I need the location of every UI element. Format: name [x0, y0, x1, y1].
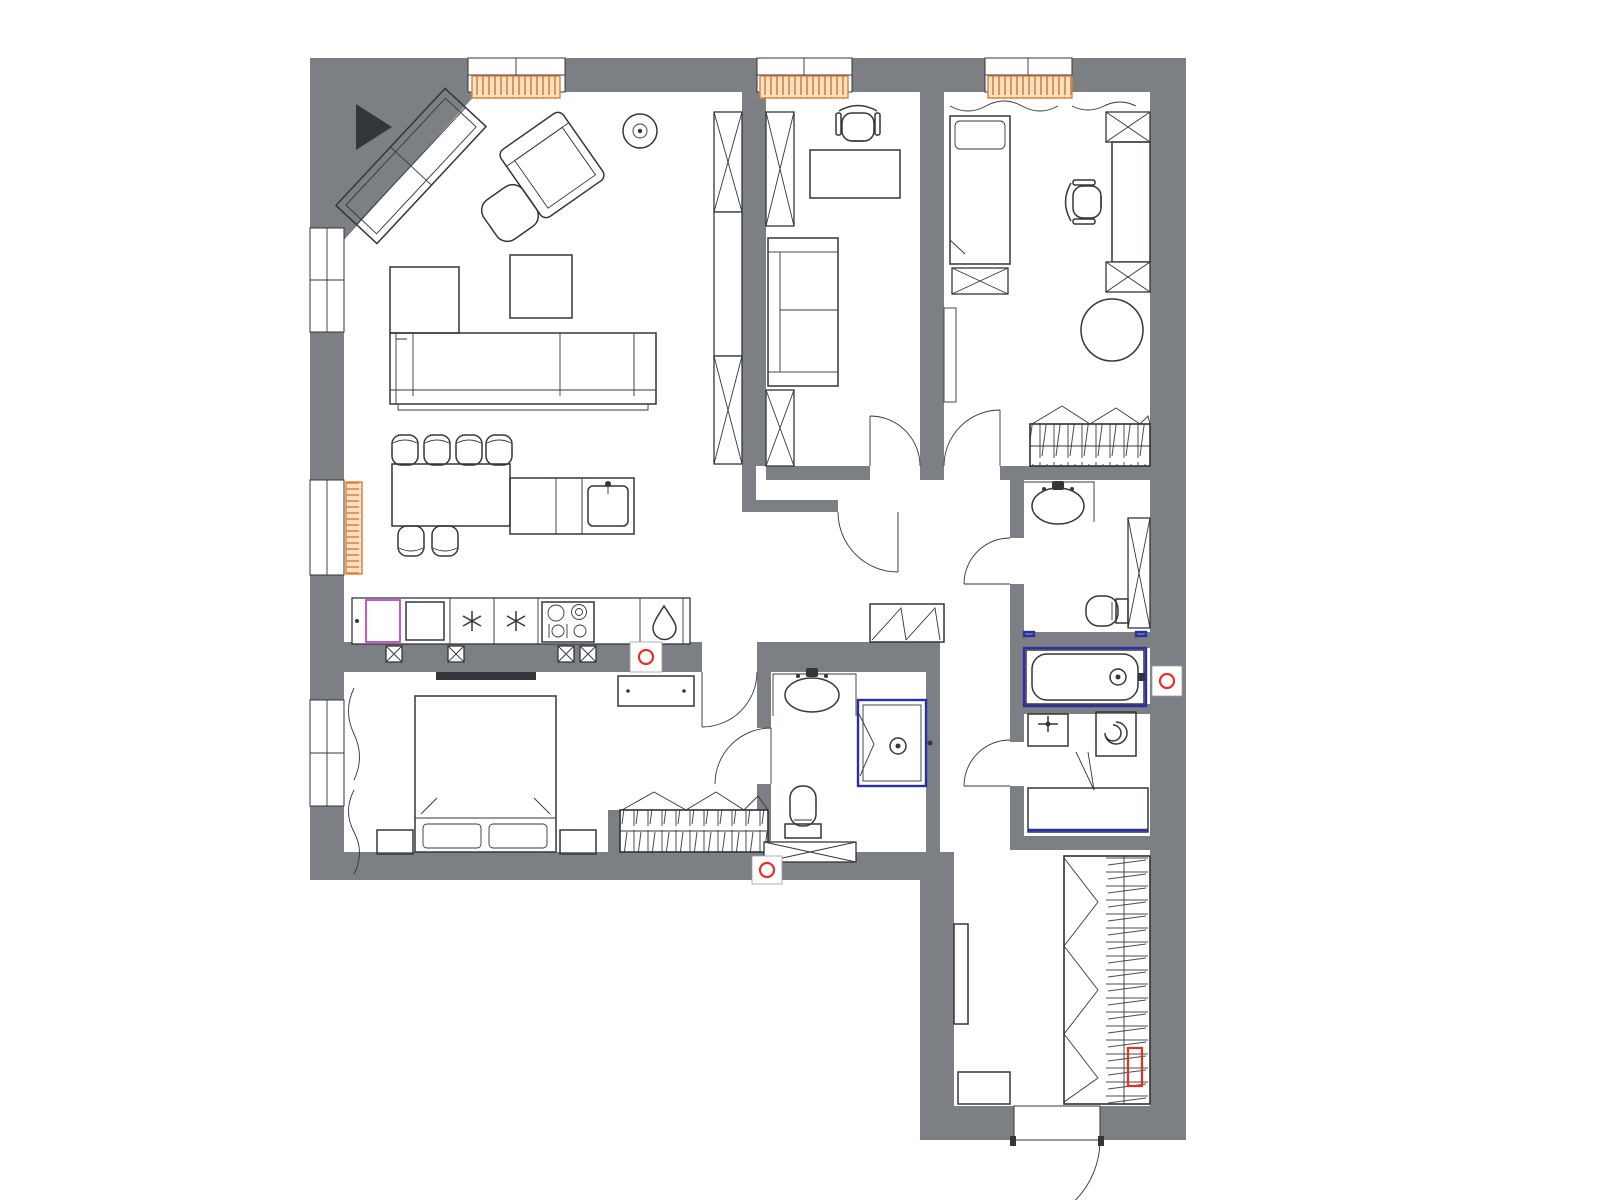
wall-ensuite-left-a — [757, 672, 771, 728]
wall-tv — [436, 672, 536, 680]
ensuite-toilet — [785, 786, 821, 838]
office-desk — [810, 150, 900, 198]
wall-ensuite-right — [926, 672, 940, 852]
window-master-left — [310, 700, 344, 806]
family-toilet — [1086, 596, 1128, 626]
door-office — [870, 416, 920, 466]
office-desk-chair — [836, 106, 880, 142]
radiators — [346, 76, 1072, 574]
drain-mark-kitchen — [630, 642, 662, 672]
bedroom-desk-chair — [1066, 180, 1102, 224]
wall-bath-left-c — [1010, 648, 1024, 708]
drain-mark-ensuite — [752, 856, 782, 884]
double-bed — [415, 696, 556, 852]
armchair — [497, 110, 606, 221]
wall-bottom-entry-left — [920, 1106, 1014, 1140]
family-vanity-washbasin — [1024, 481, 1094, 524]
wall-laundry-corridor — [1010, 836, 1150, 850]
kitchen-counter — [352, 598, 690, 644]
utility-sink — [1028, 714, 1068, 746]
kitchen-island — [510, 478, 634, 534]
curtain — [950, 101, 1136, 111]
radiator-office — [760, 76, 848, 98]
outlet-icon — [386, 646, 402, 662]
outlet-icon — [448, 646, 464, 662]
door-kids-bedroom — [944, 410, 1000, 466]
door-laundry — [964, 740, 1010, 786]
master-open-wardrobe — [608, 792, 768, 852]
room-kids-bedroom — [944, 101, 1150, 466]
ceiling-lamp — [623, 114, 657, 148]
floor-plan-drawing — [0, 0, 1600, 1200]
wall-bath-left-a — [1010, 480, 1024, 538]
wall-hall-pier — [920, 466, 944, 480]
outlet-icon — [558, 646, 574, 662]
bath-blue-walls — [1024, 648, 1146, 706]
corner-sofa — [390, 267, 656, 410]
door-family-bathroom — [964, 538, 1010, 584]
dining-table — [392, 464, 510, 526]
door-kitchen-hall — [838, 512, 898, 572]
bedroom-desk — [1112, 142, 1150, 262]
wall-shelf — [944, 308, 956, 402]
window-living-left-1 — [310, 228, 344, 332]
wall-corridor-left — [920, 880, 954, 1140]
wall-hall-a — [766, 466, 870, 480]
wall-kitchen-stub-h — [742, 500, 838, 512]
bathtub — [1026, 650, 1145, 704]
wall-right — [1150, 92, 1186, 1140]
room-laundry — [1028, 712, 1148, 832]
wall-office-bedroom — [920, 92, 944, 466]
room-entrance-hall — [954, 856, 1150, 1200]
room-office — [766, 106, 900, 467]
coffee-table — [510, 255, 572, 318]
ensuite-vanity-washbasin — [773, 668, 856, 716]
laundry-counter — [1028, 788, 1148, 832]
radiator-kitchen-left — [346, 482, 362, 574]
hall-open-wardrobe — [1064, 856, 1150, 1104]
nightstand-left — [377, 830, 413, 854]
door-ensuite — [715, 728, 771, 784]
window-living-left-2 — [310, 480, 344, 575]
entrance-door — [1010, 1136, 1104, 1200]
pouf — [477, 180, 544, 247]
room-master-bedroom — [349, 672, 769, 874]
nightstand-right — [560, 830, 596, 854]
door-master-bedroom — [702, 672, 757, 727]
folding-door-mark — [1076, 752, 1094, 790]
wall-ensuite-top — [757, 642, 940, 672]
radiator-bedroom — [988, 76, 1072, 98]
floor-plan-page — [0, 0, 1600, 1200]
desk-wardrobe-strip — [1106, 112, 1150, 292]
shoe-cabinet-hall — [870, 604, 944, 642]
dresser — [618, 676, 694, 706]
single-bed — [950, 116, 1010, 264]
bedroom-open-wardrobe — [1030, 406, 1150, 466]
wall-bath-left-e — [1010, 786, 1024, 836]
outlet-icon — [580, 646, 596, 662]
radiator-living — [472, 76, 560, 98]
drain-mark-bath — [1152, 666, 1182, 696]
room-family-bathroom — [1024, 481, 1150, 636]
office-sofa — [768, 238, 838, 386]
shower-cabin — [858, 700, 933, 786]
wall-bath-divider-1 — [1010, 632, 1150, 648]
entrance-door-opening — [1014, 1106, 1100, 1140]
dishwasher — [366, 600, 400, 642]
washing-machine — [1096, 712, 1136, 756]
bed-chest — [952, 268, 1008, 294]
bar-stools — [392, 435, 512, 556]
curtain — [349, 688, 360, 874]
wall-bottom-left — [310, 852, 954, 880]
wardrobe-column-living — [714, 112, 742, 464]
hall-mirror — [954, 924, 968, 1024]
wall-living-office — [742, 92, 766, 466]
hall-bench — [958, 1072, 1010, 1104]
tall-cabinet — [1128, 518, 1150, 628]
wall-hall-b — [1000, 466, 1150, 480]
round-rug — [1081, 299, 1143, 361]
wall-kitchen-stub-v — [742, 466, 756, 500]
